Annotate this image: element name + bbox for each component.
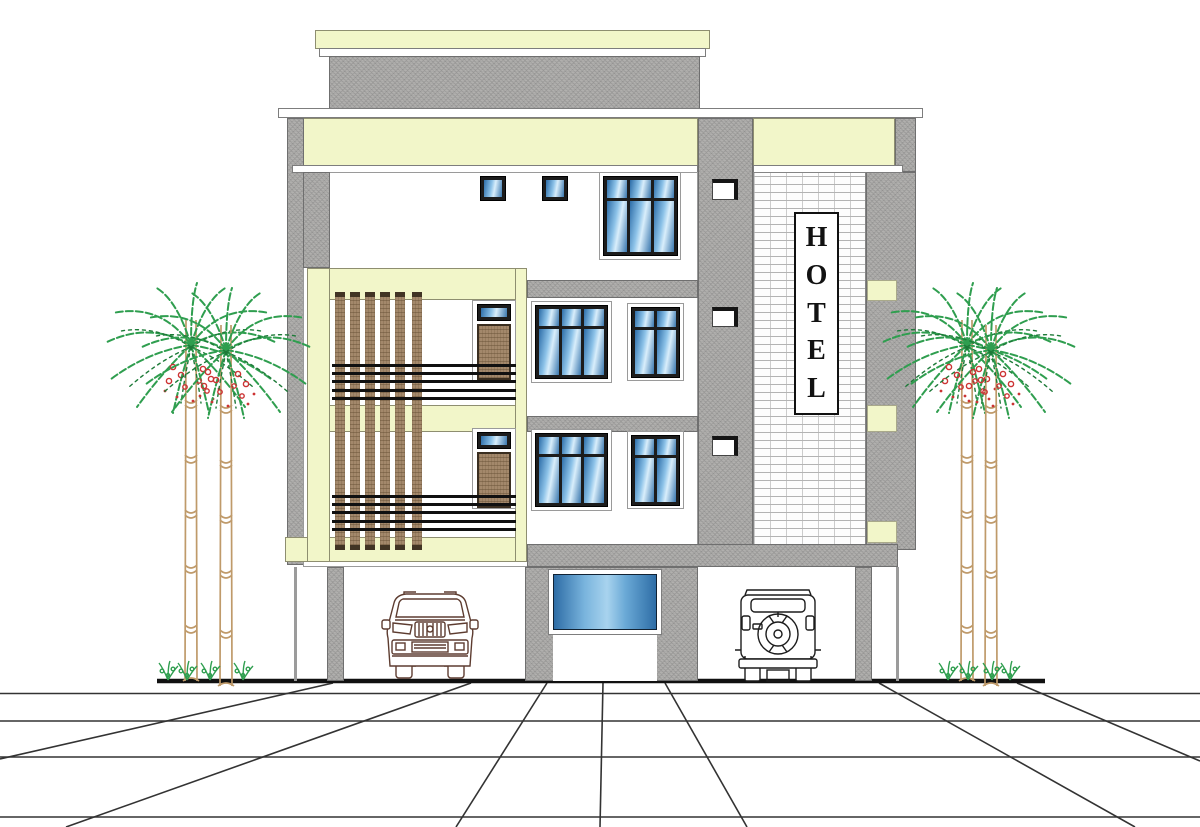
foreground-art (0, 0, 1200, 827)
suv-front-icon (382, 592, 478, 678)
jeep-rear-icon (735, 590, 821, 681)
elevation-drawing: H O T E L (0, 0, 1200, 827)
palm-tree-icon (105, 283, 1077, 686)
grass-tuft-icon (159, 661, 1020, 680)
